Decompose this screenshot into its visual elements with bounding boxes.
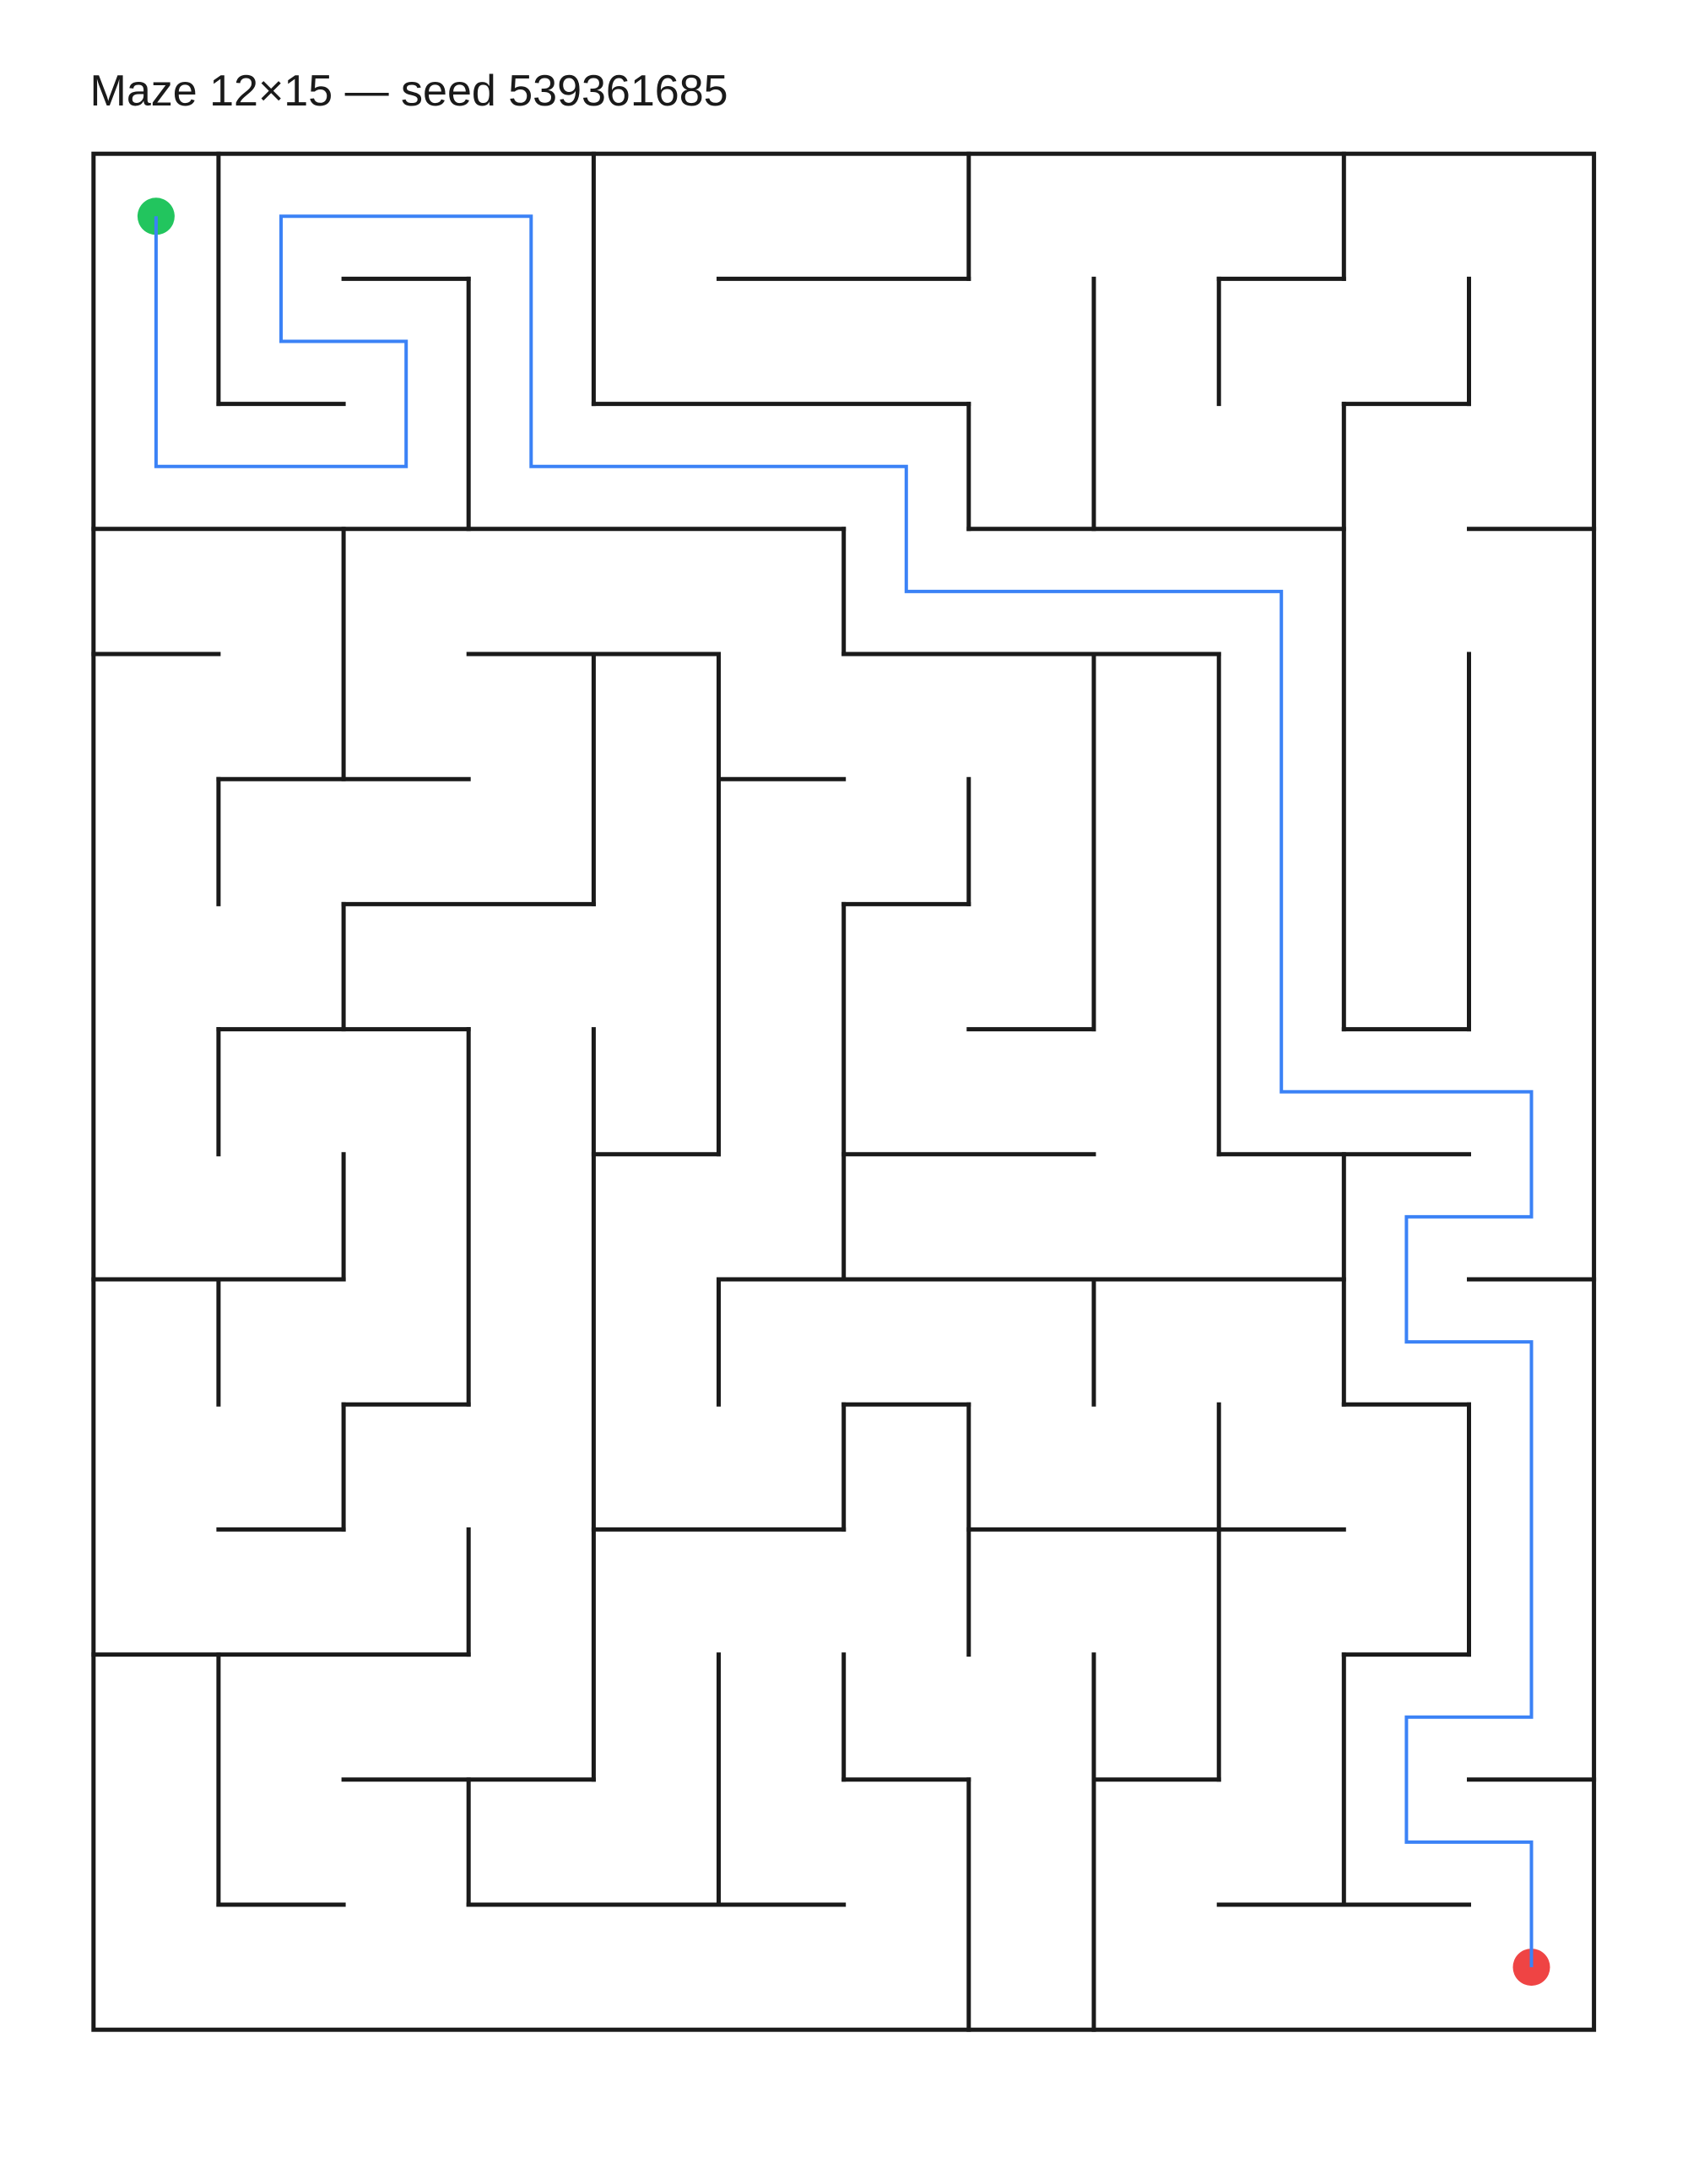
svg-text:Maze 12×15 — seed 539361685: Maze 12×15 — seed 539361685 bbox=[90, 67, 728, 116]
